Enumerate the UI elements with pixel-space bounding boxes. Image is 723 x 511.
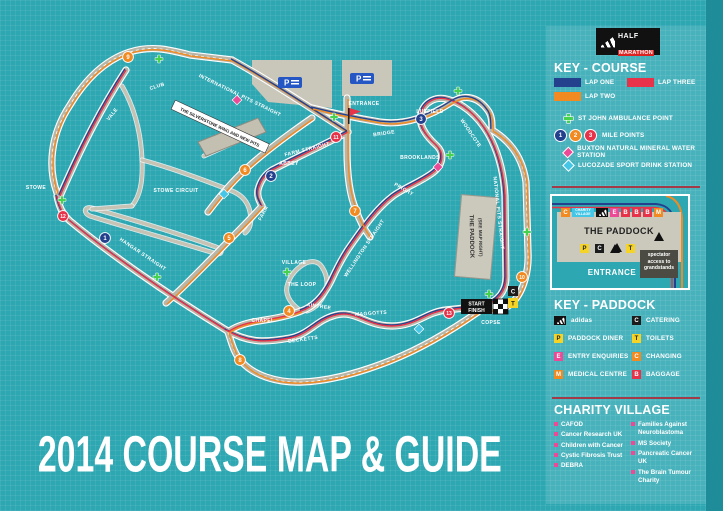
mile-point-3: 3	[416, 114, 427, 125]
bullet-icon	[631, 451, 635, 455]
legend-water-station: BUXTON NATURAL MINERAL WATER STATION	[564, 145, 706, 159]
adidas-logo-icon	[598, 209, 607, 216]
charity-name: Cystic Fibrosis Trust	[561, 452, 622, 460]
map-label: LUFFIELD	[416, 109, 443, 115]
svg-text:VILLAGE: VILLAGE	[282, 260, 307, 266]
ambulance-marker-icon	[446, 151, 454, 159]
CATERING-box-icon: C	[632, 316, 641, 325]
bullet-icon	[554, 432, 558, 436]
bullet-icon	[554, 453, 558, 457]
key-paddock-item: adidas	[554, 316, 632, 325]
key-paddock-item: BBAGGAGE	[632, 370, 702, 379]
event-logo: HALF MARATHON	[596, 28, 660, 55]
mile-point-13: 13	[444, 308, 455, 319]
lap-label: LAP THREE	[658, 79, 695, 86]
mile-point-11: 11	[331, 132, 342, 143]
lap-swatch	[554, 78, 581, 87]
lap-swatch	[627, 78, 654, 87]
key-paddock-label: CATERING	[646, 317, 680, 324]
key-paddock-label: ENTRY ENQUIRIES	[568, 353, 628, 360]
drink-station-icon	[562, 159, 575, 172]
mile-point-sample: 3	[584, 129, 597, 142]
mile-point-10: 10	[517, 272, 528, 283]
bullet-icon	[554, 443, 558, 447]
charity-item: Cystic Fibrosis Trust	[554, 452, 625, 460]
E-box-icon: E	[610, 208, 619, 217]
checkered-flag-icon	[493, 299, 508, 314]
logo-event-line2: MARATHON	[618, 50, 654, 56]
key-paddock-item: MMEDICAL CENTRE	[554, 370, 632, 379]
svg-text:STOWE CIRCUIT: STOWE CIRCUIT	[153, 188, 198, 194]
charity-name: DEBRA	[561, 462, 583, 470]
mile-point-9: 9	[123, 52, 134, 63]
charity-name: MS Society	[638, 440, 671, 448]
mile-point-sample: 1	[554, 129, 567, 142]
mile-point-5: 5	[224, 233, 235, 244]
key-paddock-grid: adidasCCATERINGPPADDOCK DINERTTOILETSEEN…	[554, 316, 702, 379]
poster-edge	[706, 0, 723, 511]
svg-text:T: T	[511, 302, 515, 308]
charity-name: CAFOD	[561, 421, 583, 429]
map-label: MAGGOTTS	[355, 310, 388, 318]
svg-text:BROOKLANDS: BROOKLANDS	[400, 155, 440, 161]
adidas-box-icon	[554, 316, 566, 325]
svg-text:12: 12	[60, 214, 66, 220]
bullet-icon	[554, 463, 558, 467]
mile-point-6: 6	[240, 165, 251, 176]
mile-point-sample: 2	[569, 129, 582, 142]
lap-legend-item: LAP TWO	[554, 92, 627, 101]
bullet-icon	[631, 441, 635, 445]
lap-legend-item: LAP THREE	[627, 78, 700, 87]
PADDOCK DINER-box-icon: P	[554, 334, 563, 343]
charity-village-heading: CHARITY VILLAGE	[554, 403, 670, 417]
charity-item: MS Society	[631, 440, 702, 448]
parking-sign-1: P	[278, 77, 302, 88]
key-course-heading: KEY - COURSE	[554, 61, 646, 75]
charity-column-left: CAFODCancer Research UKChildren with Can…	[554, 421, 625, 488]
paddock-building: THE PADDOCK (SEE MAP RIGHT)	[454, 195, 497, 280]
spectator-arrow-icon	[654, 232, 664, 241]
logo-event-line1: HALF	[618, 33, 639, 40]
P-box-icon: P	[580, 244, 589, 253]
mile-point-sample-icons: 123	[554, 129, 597, 142]
charity-name: Families Against Neuroblastoma	[638, 421, 702, 438]
svg-text:THE PADDOCK: THE PADDOCK	[468, 215, 475, 259]
M-box-icon: M	[654, 208, 663, 217]
mile-point-8: 8	[235, 355, 246, 366]
mile-point-7: 7	[350, 206, 361, 217]
svg-text:THE LOOP: THE LOOP	[288, 282, 317, 288]
poster: { "title": "2014 COURSE MAP & GUIDE", "l…	[0, 0, 723, 511]
bullet-icon	[631, 422, 635, 426]
paddock-bottom-icons: PCT	[580, 244, 635, 253]
svg-text:VALE: VALE	[106, 107, 120, 122]
ambulance-marker-icon	[155, 55, 163, 63]
charity-name: Children with Cancer	[561, 442, 623, 450]
mile-point-2: 2	[266, 171, 277, 182]
CHARITY VILLAGE-box-icon: CHARITYVILLAGE	[572, 208, 594, 217]
map-label: COPSE	[481, 320, 501, 326]
legend-mile-points: 123 MILE POINTS	[554, 129, 644, 142]
water-station-icon	[562, 146, 574, 158]
T-box-icon: T	[626, 244, 635, 253]
map-label: BROOKLANDS	[400, 155, 440, 161]
svg-text:FINISH: FINISH	[468, 308, 485, 314]
spectator-access-note: spectator access to grandstands	[640, 250, 678, 278]
separator	[552, 397, 700, 399]
key-paddock-label: CHANGING	[646, 353, 682, 360]
B-box-icon: B	[632, 208, 641, 217]
key-paddock-label: TOILETS	[646, 335, 674, 342]
C-box-icon: C	[595, 244, 604, 253]
svg-text:MAGGOTTS: MAGGOTTS	[355, 310, 388, 318]
mile-point-4: 4	[284, 306, 295, 317]
charity-item: Pancreatic Cancer UK	[631, 450, 702, 467]
key-paddock-label: adidas	[571, 317, 592, 324]
mile-point-1: 1	[100, 233, 111, 244]
TOILETS-box-icon: T	[632, 334, 641, 343]
page-title: 2014 COURSE MAP & GUIDE	[25, 424, 515, 483]
svg-text:ABBEY: ABBEY	[279, 161, 299, 167]
key-paddock-label: MEDICAL CENTRE	[568, 371, 627, 378]
charity-column-right: Families Against NeuroblastomaMS Society…	[631, 421, 702, 488]
svg-text:P: P	[356, 75, 362, 84]
map-label: STOWE	[26, 185, 47, 191]
drink-station-marker-icon	[414, 324, 424, 334]
C-box-icon: C	[561, 208, 570, 217]
charity-item: Cancer Research UK	[554, 431, 625, 439]
charity-item: The Brain Tumour Charity	[631, 469, 702, 486]
key-paddock-item: TTOILETS	[632, 334, 702, 343]
svg-text:LUFFIELD: LUFFIELD	[416, 109, 443, 115]
charity-item: DEBRA	[554, 462, 625, 470]
CHANGING-box-icon: C	[632, 352, 641, 361]
svg-text:CLUB: CLUB	[149, 82, 166, 92]
svg-text:START: START	[468, 302, 484, 308]
svg-text:CHAPEL: CHAPEL	[252, 318, 275, 324]
bullet-icon	[554, 422, 558, 426]
key-paddock-heading: KEY - PADDOCK	[554, 298, 655, 312]
lap-swatch	[554, 92, 581, 101]
map-label: BRIDGE	[373, 129, 396, 138]
ambulance-marker-icon	[485, 290, 493, 298]
lap-label: LAP TWO	[585, 93, 615, 100]
separator	[552, 186, 700, 188]
lap-legend-item: LAP ONE	[554, 78, 627, 87]
map-label: CLUB	[149, 82, 166, 92]
key-paddock-label: BAGGAGE	[646, 371, 680, 378]
svg-text:(SEE MAP RIGHT): (SEE MAP RIGHT)	[478, 218, 484, 257]
adidas-logo-icon	[556, 317, 565, 324]
paddock-top-icons: CCHARITYVILLAGEEBBBM	[561, 208, 663, 217]
svg-text:11: 11	[333, 135, 339, 141]
sidebar: HALF MARATHON KEY - COURSE LAP ONELAP TH…	[546, 26, 706, 504]
B-box-icon: B	[621, 208, 630, 217]
map-label: STOWE CIRCUIT	[153, 188, 198, 194]
svg-text:ENTRANCE: ENTRANCE	[349, 101, 380, 107]
mile-point-12: 12	[58, 211, 69, 222]
charity-name: Cancer Research UK	[561, 431, 622, 439]
charity-name: Pancreatic Cancer UK	[638, 450, 702, 467]
BAGGAGE-box-icon: B	[632, 370, 641, 379]
charity-name: The Brain Tumour Charity	[638, 469, 702, 486]
charity-item: Children with Cancer	[554, 442, 625, 450]
ambulance-marker-icon	[454, 87, 462, 95]
legend-ambulance: ST JOHN AMBULANCE POINT	[564, 114, 673, 123]
map-label: ABBEY	[279, 161, 299, 167]
svg-text:13: 13	[446, 311, 452, 317]
map-label: ENTRANCE	[349, 101, 380, 107]
lap-legend: LAP ONELAP THREELAP TWO	[554, 78, 700, 101]
ambulance-cross-icon	[564, 114, 573, 123]
svg-text:10: 10	[519, 275, 525, 281]
svg-text:BRIDGE: BRIDGE	[373, 129, 396, 138]
charity-item: Families Against Neuroblastoma	[631, 421, 702, 438]
ENTRY ENQUIRIES-box-icon: E	[554, 352, 563, 361]
entrance-arrow-icon	[612, 243, 622, 252]
bullet-icon	[631, 470, 635, 474]
adidas-box-icon	[596, 208, 608, 217]
svg-text:P: P	[284, 79, 290, 88]
map-label: CHAPEL	[252, 318, 275, 324]
lap-label: LAP ONE	[585, 79, 614, 86]
charity-village-list: CAFODCancer Research UKChildren with Can…	[554, 421, 702, 488]
course-map: THE PADDOCK (SEE MAP RIGHT)	[0, 0, 546, 422]
key-paddock-item: CCHANGING	[632, 352, 702, 361]
map-label: VALE	[106, 107, 120, 122]
B-box-icon: B	[643, 208, 652, 217]
legend-drink-station: LUCOZADE SPORT DRINK STATION	[564, 161, 692, 170]
key-paddock-item: PPADDOCK DINER	[554, 334, 632, 343]
map-label: THE LOOP	[288, 282, 317, 288]
adidas-logo-icon	[599, 36, 615, 48]
key-paddock-label: PADDOCK DINER	[568, 335, 623, 342]
MEDICAL CENTRE-box-icon: M	[554, 370, 563, 379]
map-label: VILLAGE	[282, 260, 307, 266]
svg-text:C: C	[511, 290, 516, 296]
key-paddock-item: EENTRY ENQUIRIES	[554, 352, 632, 361]
charity-item: CAFOD	[554, 421, 625, 429]
svg-text:COPSE: COPSE	[481, 320, 501, 326]
parking-sign-2: P	[350, 73, 374, 84]
key-paddock-item: CCATERING	[632, 316, 702, 325]
paddock-inset-map: CCHARITYVILLAGEEBBBM THE PADDOCK PCT ENT…	[550, 194, 690, 290]
svg-text:STOWE: STOWE	[26, 185, 47, 191]
